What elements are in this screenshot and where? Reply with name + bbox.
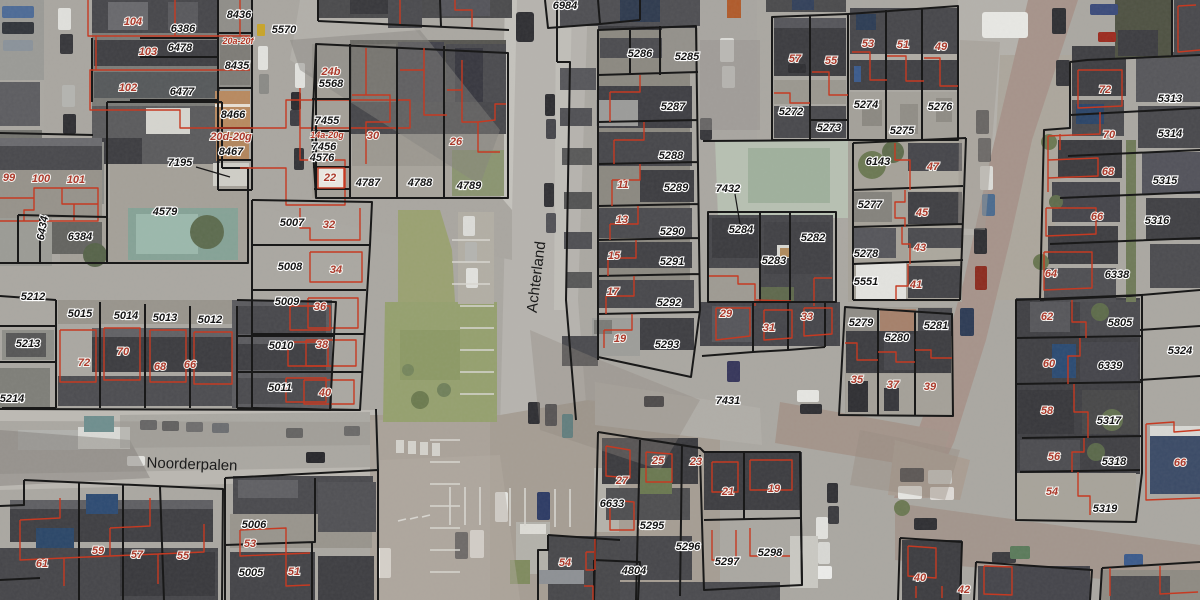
svg-text:43: 43 xyxy=(913,242,926,254)
svg-text:5012: 5012 xyxy=(198,314,222,326)
svg-text:6633: 6633 xyxy=(600,498,624,510)
svg-text:5298: 5298 xyxy=(758,547,783,559)
svg-text:4788: 4788 xyxy=(407,177,433,189)
svg-text:5286: 5286 xyxy=(628,48,653,60)
svg-text:20d-20g: 20d-20g xyxy=(209,131,252,143)
svg-text:101: 101 xyxy=(67,174,85,186)
svg-text:5290: 5290 xyxy=(660,226,685,238)
svg-text:38: 38 xyxy=(316,339,329,351)
svg-text:36: 36 xyxy=(314,301,327,313)
svg-text:5551: 5551 xyxy=(854,276,878,288)
svg-text:5283: 5283 xyxy=(762,255,786,267)
svg-text:5278: 5278 xyxy=(854,248,879,260)
svg-text:40: 40 xyxy=(318,387,332,399)
svg-text:104: 104 xyxy=(124,16,142,28)
svg-text:5281: 5281 xyxy=(924,320,948,332)
svg-text:58: 58 xyxy=(1041,405,1054,417)
svg-text:5284: 5284 xyxy=(729,224,753,236)
svg-text:68: 68 xyxy=(1102,166,1115,178)
svg-text:7195: 7195 xyxy=(168,157,193,169)
svg-text:5568: 5568 xyxy=(319,78,344,90)
svg-text:19: 19 xyxy=(614,333,627,345)
svg-text:100: 100 xyxy=(32,173,51,185)
svg-text:5289: 5289 xyxy=(664,182,689,194)
svg-text:7432: 7432 xyxy=(716,183,740,195)
svg-text:4576: 4576 xyxy=(309,152,335,164)
svg-text:4579: 4579 xyxy=(152,206,178,218)
svg-text:14a-20g: 14a-20g xyxy=(310,130,344,140)
svg-text:5212: 5212 xyxy=(21,291,45,303)
svg-text:5008: 5008 xyxy=(278,261,303,273)
svg-text:64: 64 xyxy=(1045,268,1057,280)
svg-text:5274: 5274 xyxy=(854,99,878,111)
svg-text:57: 57 xyxy=(789,53,802,65)
svg-text:5010: 5010 xyxy=(269,340,294,352)
svg-text:5280: 5280 xyxy=(885,332,910,344)
svg-text:31: 31 xyxy=(763,322,775,334)
svg-text:5005: 5005 xyxy=(239,567,264,579)
svg-text:5213: 5213 xyxy=(16,338,40,350)
svg-text:6143: 6143 xyxy=(866,156,890,168)
svg-text:51: 51 xyxy=(897,39,909,51)
svg-text:5295: 5295 xyxy=(640,520,665,532)
svg-text:5315: 5315 xyxy=(1153,175,1178,187)
svg-text:49: 49 xyxy=(934,41,948,53)
svg-text:5013: 5013 xyxy=(153,312,177,324)
svg-text:6339: 6339 xyxy=(1098,360,1123,372)
svg-text:66: 66 xyxy=(1174,457,1187,469)
svg-text:72: 72 xyxy=(1099,84,1111,96)
svg-text:55: 55 xyxy=(825,55,838,67)
svg-text:102: 102 xyxy=(119,82,137,94)
svg-text:5317: 5317 xyxy=(1097,415,1122,427)
svg-text:103: 103 xyxy=(139,46,157,58)
svg-text:6478: 6478 xyxy=(168,42,193,54)
svg-text:34: 34 xyxy=(330,264,342,276)
svg-text:5006: 5006 xyxy=(242,519,267,531)
svg-text:23: 23 xyxy=(689,456,702,468)
svg-text:54: 54 xyxy=(1046,486,1058,498)
svg-text:19: 19 xyxy=(768,483,781,495)
svg-text:55: 55 xyxy=(177,550,190,562)
svg-text:66: 66 xyxy=(1091,211,1104,223)
svg-text:15: 15 xyxy=(608,250,621,262)
svg-text:21: 21 xyxy=(721,486,734,498)
svg-text:35: 35 xyxy=(851,374,864,386)
svg-text:5011: 5011 xyxy=(268,382,292,394)
svg-text:5570: 5570 xyxy=(272,24,297,36)
svg-text:4787: 4787 xyxy=(355,177,381,189)
svg-text:72: 72 xyxy=(78,357,90,369)
svg-text:41: 41 xyxy=(909,279,922,291)
svg-text:61: 61 xyxy=(36,558,48,570)
svg-text:4789: 4789 xyxy=(456,180,482,192)
svg-text:37: 37 xyxy=(887,379,900,391)
svg-text:45: 45 xyxy=(915,207,929,219)
svg-text:5293: 5293 xyxy=(655,339,679,351)
svg-text:5313: 5313 xyxy=(1158,93,1182,105)
svg-text:5285: 5285 xyxy=(675,51,700,63)
svg-text:6338: 6338 xyxy=(1105,269,1130,281)
svg-text:5282: 5282 xyxy=(801,232,825,244)
svg-text:17: 17 xyxy=(607,286,620,298)
svg-text:47: 47 xyxy=(926,161,940,173)
svg-text:54: 54 xyxy=(559,557,571,569)
svg-text:32: 32 xyxy=(323,219,335,231)
svg-text:6386: 6386 xyxy=(171,23,196,35)
svg-text:68: 68 xyxy=(154,361,167,373)
svg-text:25: 25 xyxy=(651,455,665,467)
svg-text:33: 33 xyxy=(801,311,813,323)
svg-text:66: 66 xyxy=(184,359,197,371)
svg-text:6477: 6477 xyxy=(170,86,195,98)
svg-text:5277: 5277 xyxy=(858,199,883,211)
svg-text:5288: 5288 xyxy=(659,150,684,162)
svg-text:30: 30 xyxy=(367,130,380,142)
svg-text:7455: 7455 xyxy=(315,115,340,127)
svg-text:70: 70 xyxy=(1103,129,1116,141)
svg-text:53: 53 xyxy=(244,538,256,550)
svg-text:8435: 8435 xyxy=(225,60,250,72)
svg-text:5292: 5292 xyxy=(657,297,681,309)
svg-text:60: 60 xyxy=(1043,358,1056,370)
svg-text:5296: 5296 xyxy=(676,541,701,553)
svg-text:8436: 8436 xyxy=(227,9,252,21)
svg-text:5007: 5007 xyxy=(280,217,305,229)
svg-text:5214: 5214 xyxy=(0,393,24,405)
svg-text:11: 11 xyxy=(617,179,628,191)
svg-text:5009: 5009 xyxy=(275,296,300,308)
svg-text:5805: 5805 xyxy=(1108,317,1133,329)
svg-text:42: 42 xyxy=(957,584,970,596)
svg-text:99: 99 xyxy=(3,172,16,184)
svg-text:5276: 5276 xyxy=(928,101,953,113)
svg-text:53: 53 xyxy=(862,38,874,50)
svg-text:5316: 5316 xyxy=(1145,215,1170,227)
svg-text:51: 51 xyxy=(288,566,300,578)
svg-text:Noorderpalen: Noorderpalen xyxy=(146,454,237,474)
svg-text:5291: 5291 xyxy=(660,256,684,268)
svg-text:27: 27 xyxy=(615,475,629,487)
svg-text:70: 70 xyxy=(117,346,130,358)
svg-text:5314: 5314 xyxy=(1158,128,1182,140)
svg-text:29: 29 xyxy=(719,308,733,320)
svg-text:57: 57 xyxy=(131,549,144,561)
svg-text:26: 26 xyxy=(449,136,463,148)
svg-text:5279: 5279 xyxy=(849,317,874,329)
svg-text:62: 62 xyxy=(1041,311,1053,323)
svg-text:13: 13 xyxy=(616,214,628,226)
svg-text:6984: 6984 xyxy=(553,0,577,12)
svg-text:20a-20f: 20a-20f xyxy=(221,36,254,46)
svg-text:24b: 24b xyxy=(321,66,341,78)
svg-text:56: 56 xyxy=(1048,451,1061,463)
svg-text:5297: 5297 xyxy=(715,556,740,568)
svg-text:5319: 5319 xyxy=(1093,503,1118,515)
svg-text:5318: 5318 xyxy=(1102,456,1127,468)
svg-text:5015: 5015 xyxy=(68,308,93,320)
svg-text:5014: 5014 xyxy=(114,310,138,322)
svg-text:22: 22 xyxy=(323,172,336,184)
svg-text:5324: 5324 xyxy=(1168,345,1192,357)
svg-text:5272: 5272 xyxy=(779,106,803,118)
svg-text:39: 39 xyxy=(924,381,937,393)
svg-text:40: 40 xyxy=(913,572,927,584)
svg-text:59: 59 xyxy=(92,545,105,557)
svg-text:8467: 8467 xyxy=(219,146,244,158)
svg-text:7431: 7431 xyxy=(716,395,740,407)
svg-text:5287: 5287 xyxy=(661,101,686,113)
svg-text:8466: 8466 xyxy=(221,109,246,121)
svg-text:5275: 5275 xyxy=(890,125,915,137)
svg-text:5273: 5273 xyxy=(817,122,841,134)
svg-text:6384: 6384 xyxy=(68,231,92,243)
svg-text:4804: 4804 xyxy=(621,565,646,577)
